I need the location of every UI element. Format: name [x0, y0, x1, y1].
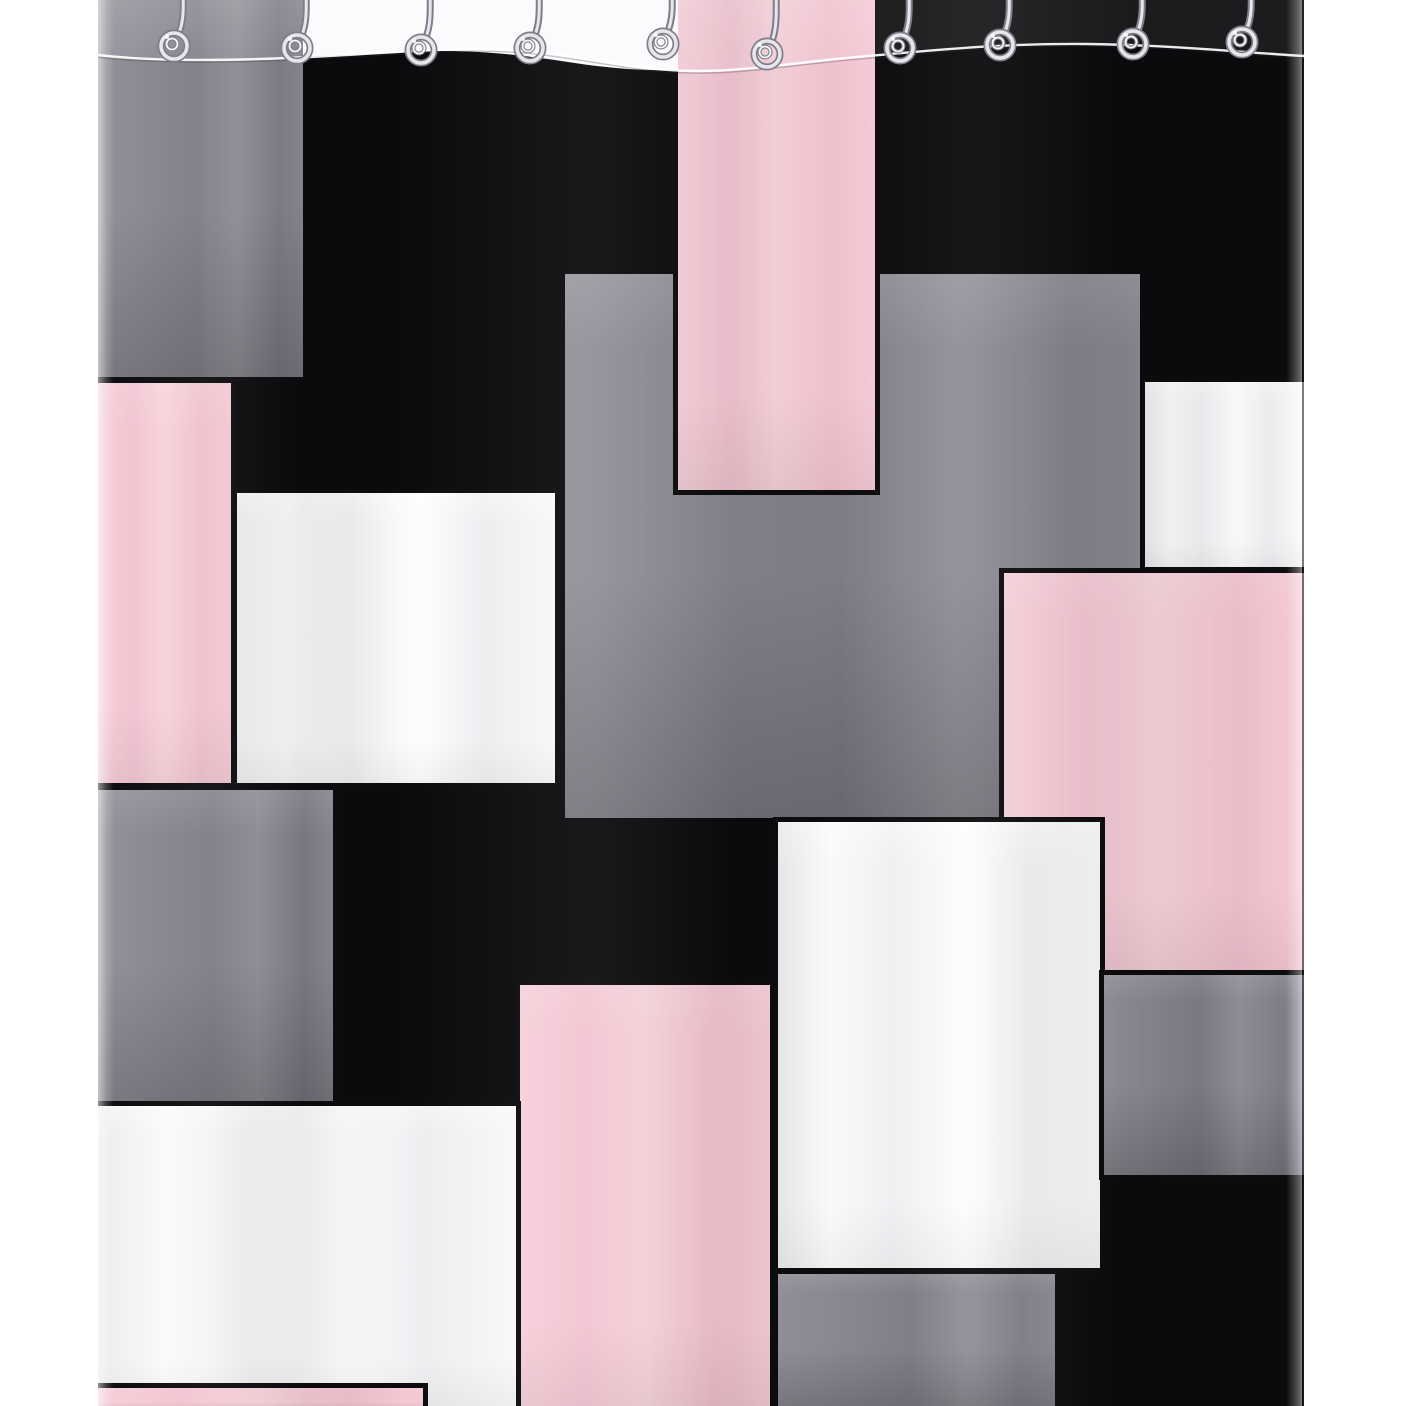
- hook-inner-curl: [1126, 37, 1137, 48]
- patch-pink-bottom-strip: [98, 1388, 423, 1406]
- hook-inner-curl-highlight: [656, 37, 667, 48]
- hook-coil: [1120, 31, 1146, 57]
- hook-inner-curl-highlight: [414, 43, 425, 54]
- patch-gray-right-lower: [1104, 975, 1304, 1175]
- hook-inner-curl: [523, 41, 534, 52]
- product-photo: [0, 0, 1406, 1406]
- hook-glint: [412, 39, 416, 43]
- hook-stem: [426, 0, 430, 37]
- hook-coil: [1229, 29, 1255, 55]
- hook-stem: [535, 0, 539, 35]
- hook-coil-highlight: [408, 37, 434, 63]
- hook-stem-highlight: [535, 0, 539, 35]
- hook-stem-highlight: [668, 0, 672, 31]
- curtain-hook: [887, 0, 913, 61]
- hook-coil: [517, 35, 543, 61]
- patch-white-upper-left: [237, 493, 555, 783]
- hook-inner-curl-highlight: [893, 41, 904, 52]
- hook-coil: [987, 32, 1013, 58]
- hook-stem-highlight: [1247, 0, 1251, 29]
- hook-inner-curl: [414, 43, 425, 54]
- patch-white-bottom-left: [98, 1106, 516, 1406]
- curtain-header-band: [303, 0, 678, 70]
- hook-coil: [408, 37, 434, 63]
- hook-glint: [991, 34, 995, 38]
- hook-stem: [1138, 0, 1142, 31]
- shower-curtain: [98, 0, 1304, 1406]
- patch-gray-mid-left: [98, 790, 333, 1106]
- curtain-hook: [408, 0, 434, 63]
- patch-pink-bottom-center: [520, 985, 770, 1406]
- patch-gray-bottom-center: [778, 1274, 1055, 1406]
- hook-glint: [891, 37, 895, 41]
- patch-white-center-bottom: [778, 822, 1100, 1268]
- curtain-hook: [1229, 0, 1255, 55]
- hook-stem: [1005, 0, 1009, 32]
- hook-stem: [668, 0, 672, 31]
- patch-gray-top-left: [98, 0, 303, 377]
- hook-stem-highlight: [1138, 0, 1142, 31]
- hook-stem-highlight: [905, 0, 909, 35]
- hook-inner-curl: [656, 37, 667, 48]
- hook-stem: [1247, 0, 1251, 29]
- hook-coil-highlight: [987, 32, 1013, 58]
- hook-inner-curl-highlight: [1126, 37, 1137, 48]
- curtain-hook: [987, 0, 1013, 58]
- hook-inner-curl: [993, 38, 1004, 49]
- hook-coil-highlight: [1229, 29, 1255, 55]
- hook-inner-curl-highlight: [1235, 35, 1246, 46]
- hook-stem-highlight: [426, 0, 430, 37]
- hook-coil-highlight: [517, 35, 543, 61]
- hook-coil-highlight: [650, 31, 676, 57]
- hook-glint: [521, 37, 525, 41]
- curtain-hook: [517, 0, 543, 61]
- hook-inner-curl: [893, 41, 904, 52]
- patch-pink-upper-left: [98, 383, 231, 783]
- hook-coil-highlight: [887, 35, 913, 61]
- curtain-hook: [650, 0, 676, 57]
- hook-glint: [1124, 33, 1128, 37]
- patch-pink-top-column: [678, 0, 875, 490]
- hook-inner-curl-highlight: [523, 41, 534, 52]
- hook-glint: [1233, 31, 1237, 35]
- hook-stem: [905, 0, 909, 35]
- patch-white-right: [1145, 382, 1304, 567]
- hook-stem-highlight: [1005, 0, 1009, 32]
- hook-coil: [650, 31, 676, 57]
- hook-coil-highlight: [1120, 31, 1146, 57]
- hook-glint: [654, 33, 658, 37]
- hook-inner-curl-highlight: [993, 38, 1004, 49]
- hook-coil: [887, 35, 913, 61]
- curtain-hook: [1120, 0, 1146, 57]
- hook-inner-curl: [1235, 35, 1246, 46]
